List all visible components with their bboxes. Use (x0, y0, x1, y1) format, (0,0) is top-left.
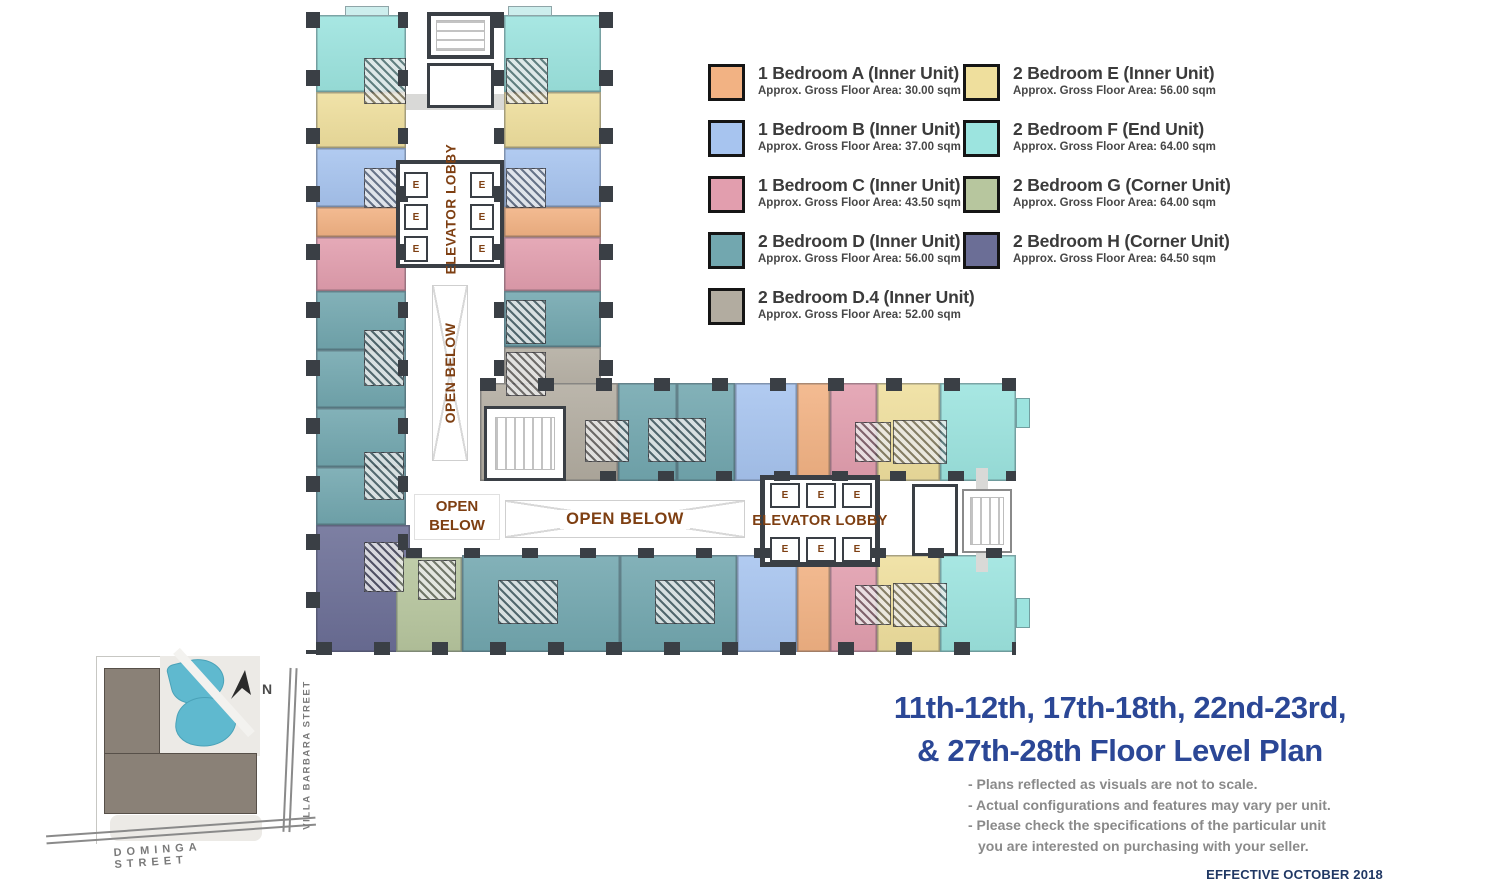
stair-hatch (648, 418, 706, 462)
legend-item-C: 1 Bedroom C (Inner Unit)Approx. Gross Fl… (708, 176, 974, 213)
legend-unit-area: Approx. Gross Floor Area: 56.00 sqm (1013, 85, 1216, 97)
legend-unit-area: Approx. Gross Floor Area: 43.50 sqm (758, 197, 961, 209)
legend-swatch-B (708, 120, 745, 157)
service-room (912, 484, 958, 556)
stair-treads (495, 417, 555, 470)
open-below-label-horizontal: OPEN BELOW (560, 510, 690, 529)
legend-unit-label: 1 Bedroom C (Inner Unit) (758, 176, 961, 195)
legend-text: 1 Bedroom B (Inner Unit)Approx. Gross Fl… (758, 120, 961, 153)
stair-treads (436, 20, 485, 51)
elevator-cell: E (404, 172, 428, 198)
page-title-line1: 11th-12th, 17th-18th, 22nd-23rd, (890, 686, 1350, 729)
elevator-cell: E (842, 483, 872, 508)
disclaimer-note-line: - Plans reflected as visuals are not to … (968, 774, 1398, 795)
disclaimer-note-line: - Actual configurations and features may… (968, 795, 1398, 816)
stair-hatch (506, 352, 546, 396)
legend-swatch-C (708, 176, 745, 213)
stair-hatch (893, 420, 947, 464)
balcony-tab (345, 6, 389, 16)
stair-hatch (364, 330, 404, 386)
disclaimer-notes: - Plans reflected as visuals are not to … (968, 774, 1398, 856)
legend-text: 2 Bedroom D (Inner Unit)Approx. Gross Fl… (758, 232, 961, 265)
legend-text: 2 Bedroom G (Corner Unit)Approx. Gross F… (1013, 176, 1231, 209)
legend-unit-area: Approx. Gross Floor Area: 37.00 sqm (758, 141, 961, 153)
legend-swatch-H (963, 232, 1000, 269)
legend-column-1: 1 Bedroom A (Inner Unit)Approx. Gross Fl… (708, 64, 974, 325)
stair-treads (970, 497, 1004, 545)
effective-date: EFFECTIVE OCTOBER 2018 (1083, 867, 1383, 882)
stair-hatch (506, 300, 546, 344)
shaft-room (427, 63, 494, 108)
legend-unit-label: 2 Bedroom D (Inner Unit) (758, 232, 961, 251)
elevator-cell: E (842, 537, 872, 562)
legend-item-D: 2 Bedroom D (Inner Unit)Approx. Gross Fl… (708, 232, 974, 269)
elevator-cell: E (470, 236, 494, 262)
stair-room-east (962, 489, 1012, 553)
legend-text: 2 Bedroom D.4 (Inner Unit)Approx. Gross … (758, 288, 974, 321)
legend-item-H: 2 Bedroom H (Corner Unit)Approx. Gross F… (963, 232, 1231, 269)
page-title: 11th-12th, 17th-18th, 22nd-23rd, & 27th-… (890, 686, 1350, 772)
building-footprint (104, 753, 257, 814)
stair-hatch (585, 420, 629, 462)
stair-hatch (855, 422, 891, 462)
stair-hatch (855, 585, 891, 625)
legend-text: 1 Bedroom A (Inner Unit)Approx. Gross Fl… (758, 64, 961, 97)
legend-unit-area: Approx. Gross Floor Area: 52.00 sqm (758, 309, 974, 321)
page-title-line2: & 27th-28th Floor Level Plan (890, 729, 1350, 772)
stair-hatch (506, 58, 548, 104)
balcony-tab (1016, 398, 1030, 428)
legend-unit-label: 1 Bedroom B (Inner Unit) (758, 120, 961, 139)
legend-item-E: 2 Bedroom E (Inner Unit)Approx. Gross Fl… (963, 64, 1231, 101)
stair-hatch (498, 580, 558, 624)
open-below-label-corner: OPEN BELOW (414, 494, 500, 540)
stair-hatch (364, 452, 404, 500)
legend-swatch-D4 (708, 288, 745, 325)
elevator-cell: E (806, 483, 836, 508)
legend-text: 2 Bedroom F (End Unit)Approx. Gross Floo… (1013, 120, 1216, 153)
balcony-tab (1016, 598, 1030, 628)
legend-swatch-G (963, 176, 1000, 213)
elevator-cell: E (470, 204, 494, 230)
stair-hatch (893, 583, 947, 627)
legend-text: 1 Bedroom C (Inner Unit)Approx. Gross Fl… (758, 176, 961, 209)
legend-unit-label: 2 Bedroom E (Inner Unit) (1013, 64, 1216, 83)
elevator-cell: E (470, 172, 494, 198)
stair-core (427, 12, 494, 59)
legend-swatch-A (708, 64, 745, 101)
stair-hatch (418, 560, 456, 600)
floor-plan-page: EEEEEEEEEEEE ELEVATOR LOBBY OPEN BELOW O… (0, 0, 1499, 887)
open-below-strip-horizontal: OPEN BELOW (505, 500, 745, 538)
elevator-cell: E (404, 204, 428, 230)
elevator-lobby-label-north: ELEVATOR LOBBY (444, 144, 459, 275)
elevator-cell: E (770, 483, 800, 508)
elevator-cell: E (404, 236, 428, 262)
legend-unit-area: Approx. Gross Floor Area: 30.00 sqm (758, 85, 961, 97)
plot-boundary (96, 656, 97, 844)
disclaimer-note-line: - Please check the specifications of the… (968, 815, 1398, 836)
legend-column-2: 2 Bedroom E (Inner Unit)Approx. Gross Fl… (963, 64, 1231, 269)
elevator-cell: E (770, 537, 800, 562)
stair-hatch (364, 542, 404, 592)
legend-unit-label: 2 Bedroom G (Corner Unit) (1013, 176, 1231, 195)
legend-unit-label: 2 Bedroom H (Corner Unit) (1013, 232, 1230, 251)
stair-hatch (655, 580, 715, 624)
legend-text: 2 Bedroom E (Inner Unit)Approx. Gross Fl… (1013, 64, 1216, 97)
legend-swatch-E (963, 64, 1000, 101)
legend-item-G: 2 Bedroom G (Corner Unit)Approx. Gross F… (963, 176, 1231, 213)
legend-unit-label: 2 Bedroom D.4 (Inner Unit) (758, 288, 974, 307)
legend-item-A: 1 Bedroom A (Inner Unit)Approx. Gross Fl… (708, 64, 974, 101)
legend-unit-label: 2 Bedroom F (End Unit) (1013, 120, 1216, 139)
legend-unit-area: Approx. Gross Floor Area: 64.00 sqm (1013, 141, 1216, 153)
legend-item-D4: 2 Bedroom D.4 (Inner Unit)Approx. Gross … (708, 288, 974, 325)
legend-unit-area: Approx. Gross Floor Area: 64.00 sqm (1013, 197, 1231, 209)
corner-stair-room (484, 406, 566, 481)
north-arrow-icon (226, 668, 262, 702)
elevator-lobby-label-south: ELEVATOR LOBBY (752, 513, 888, 529)
legend-item-B: 1 Bedroom B (Inner Unit)Approx. Gross Fl… (708, 120, 974, 157)
legend-swatch-F (963, 120, 1000, 157)
north-label: N (262, 681, 272, 697)
balcony-tab (508, 6, 552, 16)
legend-swatch-D (708, 232, 745, 269)
legend-text: 2 Bedroom H (Corner Unit)Approx. Gross F… (1013, 232, 1230, 265)
street-label-villa-barbara: VILLA BARBARA STREET (302, 680, 313, 830)
legend-item-F: 2 Bedroom F (End Unit)Approx. Gross Floo… (963, 120, 1231, 157)
stair-hatch (364, 58, 406, 104)
open-below-label-vertical: OPEN BELOW (442, 323, 458, 424)
legend-unit-area: Approx. Gross Floor Area: 64.50 sqm (1013, 253, 1230, 265)
stair-hatch (506, 168, 546, 208)
legend-unit-area: Approx. Gross Floor Area: 56.00 sqm (758, 253, 961, 265)
disclaimer-note-line: you are interested on purchasing with yo… (968, 836, 1398, 857)
elevator-cell: E (806, 537, 836, 562)
legend-unit-label: 1 Bedroom A (Inner Unit) (758, 64, 961, 83)
